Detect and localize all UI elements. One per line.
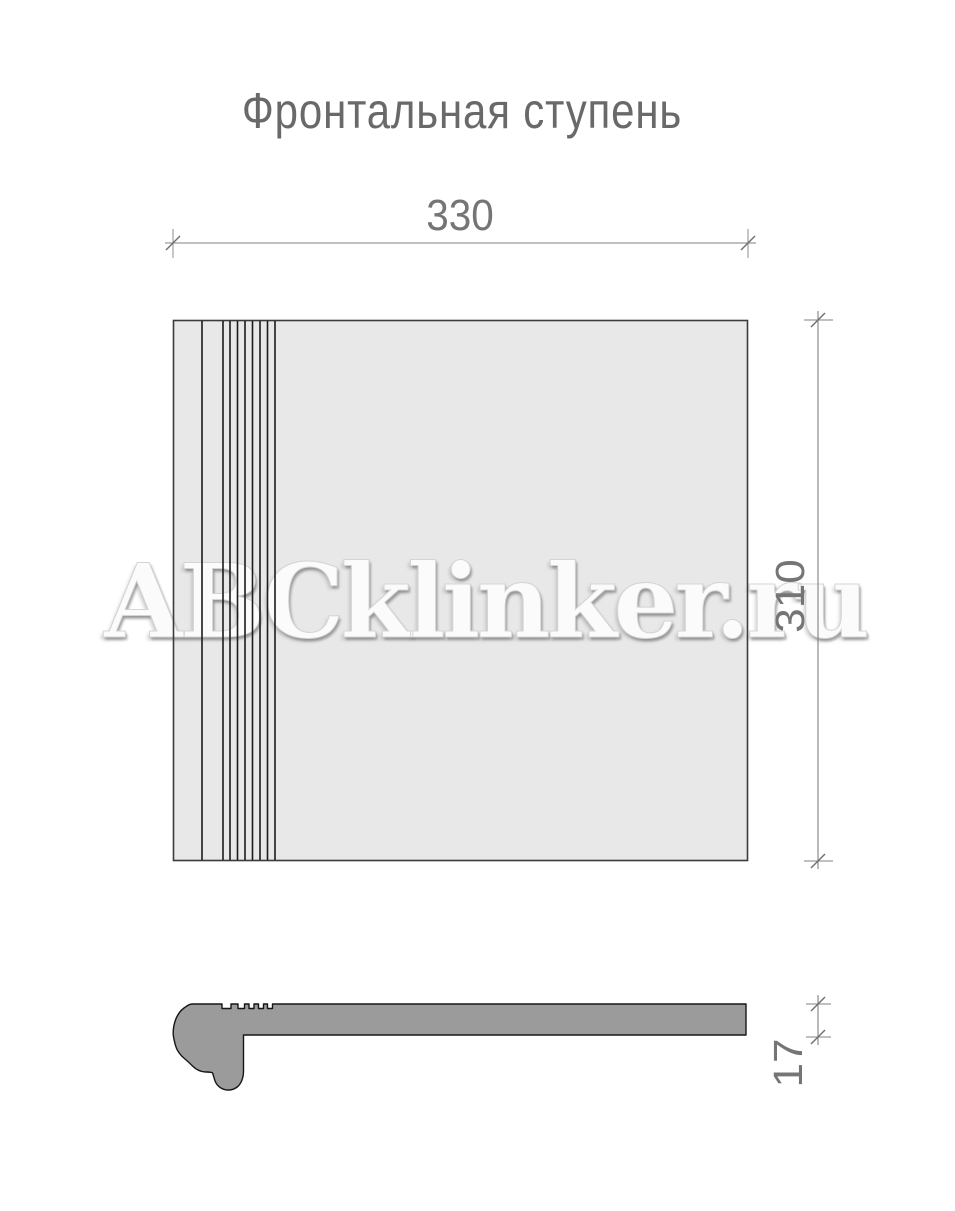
profile-view-shape [173, 1004, 746, 1090]
drawing-page: Фронтальная ступень ABCklinker.ru [0, 0, 955, 1211]
dim-label-depth: 310 [771, 546, 811, 646]
groove-lines [202, 321, 275, 860]
dim-label-width: 330 [377, 192, 543, 240]
dim-label-thickness: 17 [769, 1023, 809, 1103]
dimension-line-thickness [806, 995, 831, 1045]
